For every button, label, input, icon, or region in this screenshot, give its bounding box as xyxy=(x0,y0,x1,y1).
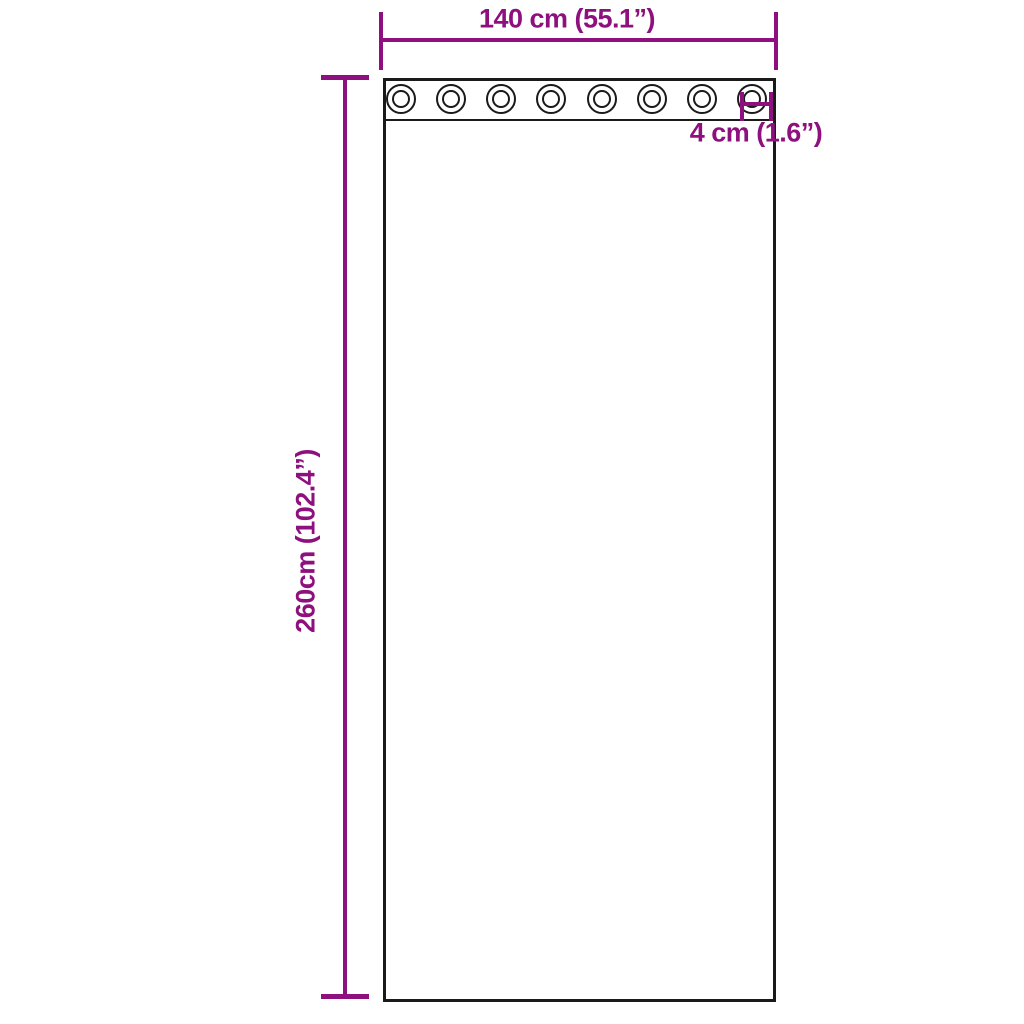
grommet-inner-ring xyxy=(492,90,510,108)
grommet-inner-ring xyxy=(593,90,611,108)
curtain-dimension-diagram: 140 cm (55.1”) 260cm (102.4”) 4 cm (1.6”… xyxy=(0,0,1024,1024)
width-dimension-left-tick xyxy=(379,12,383,70)
grommet-icon xyxy=(637,84,667,114)
width-dimension-label: 140 cm (55.1”) xyxy=(479,4,655,35)
height-dimension-bottom-tick xyxy=(321,994,369,999)
grommet-inner-ring xyxy=(693,90,711,108)
height-dimension-label: 260cm (102.4”) xyxy=(291,449,322,633)
curtain-panel xyxy=(383,78,776,1002)
grommet-icon xyxy=(436,84,466,114)
height-dimension-top-tick xyxy=(321,75,369,80)
grommet-inner-ring xyxy=(643,90,661,108)
grommet-inner-ring xyxy=(542,90,560,108)
height-dimension-line xyxy=(343,76,347,998)
grommet-icon xyxy=(386,84,416,114)
grommet-icon xyxy=(536,84,566,114)
grommet-icon xyxy=(587,84,617,114)
width-dimension-right-tick xyxy=(774,12,778,70)
grommet-icon xyxy=(687,84,717,114)
grommet-inner-ring xyxy=(442,90,460,108)
grommet-icon xyxy=(486,84,516,114)
width-dimension-line xyxy=(381,38,777,42)
grommet-dimension-label: 4 cm (1.6”) xyxy=(690,118,823,149)
grommet-inner-ring xyxy=(392,90,410,108)
